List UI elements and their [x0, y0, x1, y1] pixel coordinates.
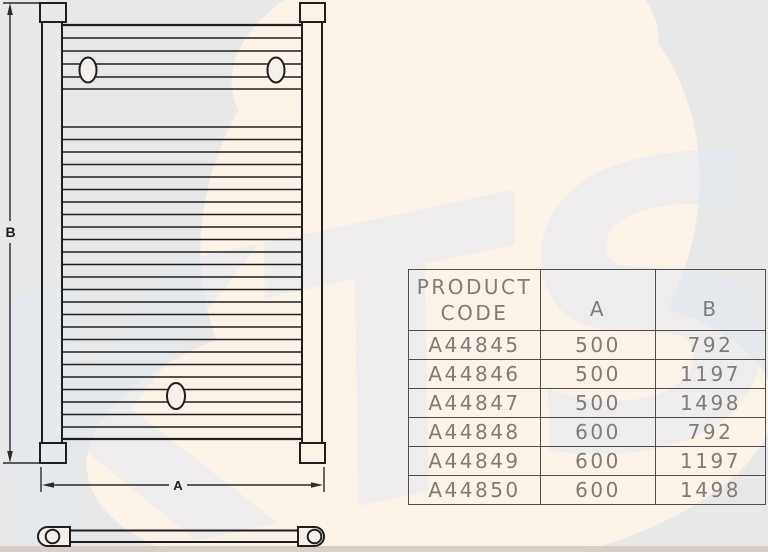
product-code-cell: A44849	[409, 447, 541, 476]
product-code-cell: A44846	[409, 360, 541, 389]
header-product-code-line2: CODE	[409, 300, 540, 326]
dim-b-cell: 1197	[656, 360, 766, 389]
header-col-b-label: B	[656, 274, 765, 326]
table-header-row: PRODUCT CODE A B	[409, 270, 766, 331]
header-col-b: B	[656, 270, 766, 331]
dim-a-cell: 600	[541, 476, 656, 505]
dim-b-cell: 792	[656, 418, 766, 447]
header-product-code: PRODUCT CODE	[409, 270, 541, 331]
dim-b-cell: 1498	[656, 476, 766, 505]
dim-a-cell: 500	[541, 331, 656, 360]
product-code-cell: A44848	[409, 418, 541, 447]
header-col-a: A	[541, 270, 656, 331]
product-spec-table: PRODUCT CODE A B A44845500792A4484650011…	[408, 269, 766, 505]
dim-b-cell: 792	[656, 331, 766, 360]
product-code-cell: A44847	[409, 389, 541, 418]
table-row: A448496001197	[409, 447, 766, 476]
dim-b-cell: 1197	[656, 447, 766, 476]
mounting-bracket-top-left	[80, 58, 97, 83]
header-product-code-line1: PRODUCT	[409, 274, 540, 300]
spec-table-body: A44845500792A448465001197A448475001498A4…	[409, 331, 766, 505]
dim-a-cell: 600	[541, 447, 656, 476]
dim-a-cell: 500	[541, 389, 656, 418]
dim-b-arrow-up	[7, 3, 13, 15]
table-row: A448506001498	[409, 476, 766, 505]
watermark-bottom-strip	[0, 546, 768, 552]
dim-b-cell: 1498	[656, 389, 766, 418]
table-row: A44845500792	[409, 331, 766, 360]
dim-a-cell: 600	[541, 418, 656, 447]
mounting-bracket-bottom-center	[167, 383, 185, 409]
header-col-a-label: A	[541, 274, 655, 326]
product-code-cell: A44845	[409, 331, 541, 360]
top-left-cap	[40, 3, 66, 22]
table-row: A448465001197	[409, 360, 766, 389]
table-row: A44848600792	[409, 418, 766, 447]
product-code-cell: A44850	[409, 476, 541, 505]
mounting-bracket-top-right	[268, 58, 285, 83]
dim-a-label: A	[173, 478, 183, 493]
dim-b-label: B	[5, 224, 15, 240]
dim-a-cell: 500	[541, 360, 656, 389]
table-row: A448475001498	[409, 389, 766, 418]
spec-sheet: KTS B	[0, 0, 768, 552]
